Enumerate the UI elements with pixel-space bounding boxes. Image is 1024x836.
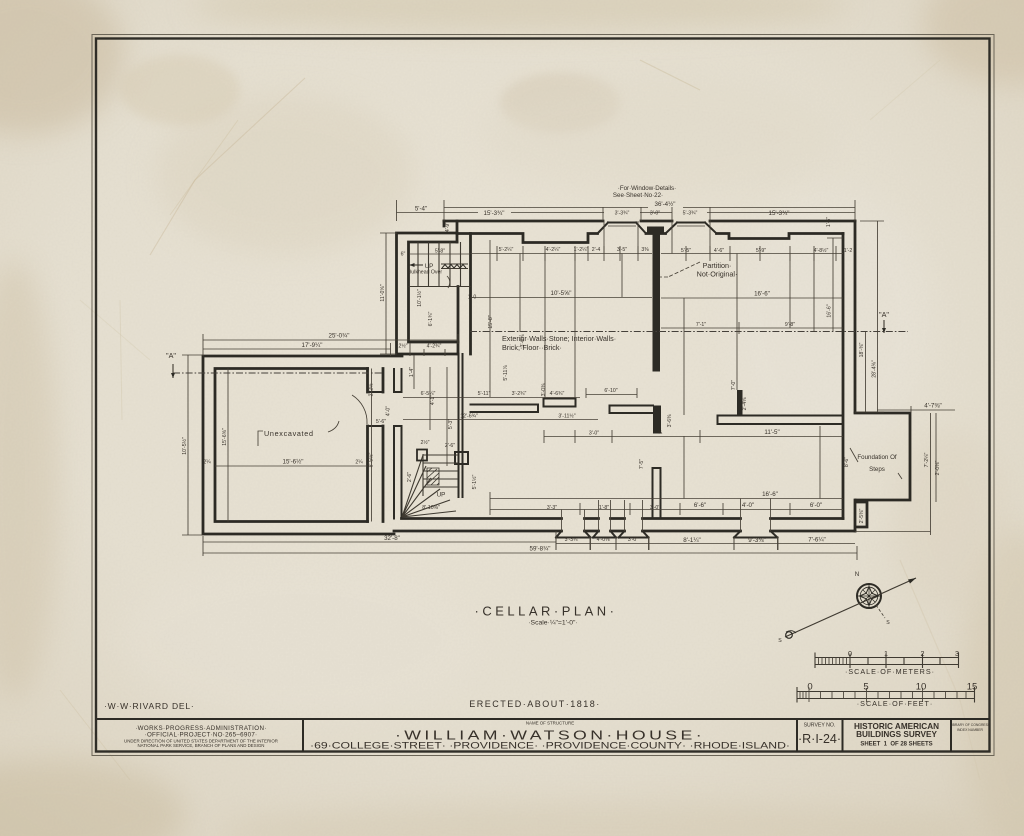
svg-text:·SCALE·OF·FEET·: ·SCALE·OF·FEET·	[857, 699, 934, 708]
svg-text:0: 0	[807, 682, 812, 693]
svg-text:"A": "A"	[879, 310, 889, 319]
svg-text:3'-0": 3'-0"	[650, 211, 660, 217]
svg-text:S: S	[886, 620, 890, 626]
svg-text:5'-11⅞: 5'-11⅞	[503, 365, 509, 381]
svg-text:5'-1½": 5'-1½"	[471, 475, 478, 490]
svg-text:2'-5⅜": 2'-5⅜"	[859, 509, 865, 524]
svg-text:11'-5": 11'-5"	[764, 429, 779, 436]
svg-text:1'-2: 1'-2	[844, 248, 853, 254]
svg-text:11'-0⅝": 11'-0⅝"	[380, 284, 386, 301]
svg-text:Bulkhead Over: Bulkhead Over	[408, 270, 443, 276]
svg-text:10: 10	[916, 682, 927, 693]
svg-text:2'-4: 2'-4	[592, 247, 601, 253]
svg-text:6'-1¾": 6'-1¾"	[428, 312, 434, 327]
svg-text:5'-4": 5'-4"	[415, 206, 427, 213]
svg-text:·For·Window·Details·: ·For·Window·Details·	[618, 185, 676, 192]
svg-text:·69·COLLEGE·STREET· ·PROVIDENC: ·69·COLLEGE·STREET· ·PROVIDENCE· ·PROVID…	[310, 741, 790, 752]
svg-text:10'-5⅝": 10'-5⅝"	[551, 290, 572, 297]
svg-text:15'-6⅝": 15'-6⅝"	[222, 428, 228, 446]
svg-text:1'-0: 1'-0	[468, 295, 477, 301]
svg-text:5'-5": 5'-5"	[681, 248, 691, 254]
svg-text:NAME OF STRUCTURE: NAME OF STRUCTURE	[526, 721, 574, 726]
svg-text:6'-0": 6'-0"	[810, 502, 822, 509]
svg-text:36'-4½": 36'-4½"	[655, 201, 676, 208]
svg-text:1'-4": 1'-4"	[409, 367, 415, 377]
svg-text:8'-1¼": 8'-1¼"	[683, 537, 700, 544]
svg-text:12'-6¾": 12'-6¾"	[460, 414, 478, 420]
svg-text:INDEX NUMBER: INDEX NUMBER	[957, 728, 984, 732]
svg-text:4'-0": 4'-0"	[386, 406, 392, 416]
svg-text:2'-0⅜": 2'-0⅜"	[935, 461, 941, 476]
svg-text:4'-2¼": 4'-2¼"	[546, 247, 561, 253]
svg-text:7'-6¼": 7'-6¼"	[808, 537, 825, 544]
svg-text:2'-4⅝: 2'-4⅝	[742, 397, 748, 410]
svg-text:Unexcavated: Unexcavated	[264, 429, 314, 438]
svg-text:UP: UP	[437, 492, 446, 499]
svg-text:SURVEY NO.: SURVEY NO.	[804, 723, 836, 729]
svg-text:8'-5½": 8'-5½"	[368, 453, 375, 468]
svg-text:15'-3¾": 15'-3¾"	[484, 210, 505, 217]
svg-text:3'-0⅜: 3'-0⅜	[541, 383, 547, 396]
svg-text:3⅜: 3⅜	[641, 247, 649, 253]
svg-text:·OFFICIAL·PROJECT·NO·265–6907·: ·OFFICIAL·PROJECT·NO·265–6907·	[145, 732, 258, 739]
svg-text:4'-7⅜": 4'-7⅜"	[924, 403, 941, 410]
svg-text:32'-8": 32'-8"	[384, 535, 400, 542]
svg-text:S: S	[778, 638, 782, 644]
svg-text:7'-2¼": 7'-2¼"	[924, 453, 930, 468]
svg-text:·R·I-24·: ·R·I-24·	[798, 732, 841, 746]
svg-text:16'-6": 16'-6"	[762, 491, 778, 498]
svg-text:4'-0⅜": 4'-0⅜"	[597, 537, 612, 543]
svg-text:3'-5": 3'-5"	[617, 247, 627, 253]
svg-text:9'-3⅜": 9'-3⅜"	[748, 537, 765, 544]
svg-text:4'-2¾": 4'-2¾"	[427, 344, 442, 350]
svg-text:8'-10⅜": 8'-10⅜"	[422, 505, 440, 511]
svg-text:15'-8": 15'-8"	[488, 315, 494, 328]
svg-text:1'-6": 1'-6"	[826, 217, 832, 227]
svg-text:7'-5": 7'-5"	[639, 459, 645, 469]
svg-text:NATIONAL PARK SERVICE, BRANCH: NATIONAL PARK SERVICE, BRANCH OF PLANS A…	[138, 743, 265, 748]
svg-text:Brick;·Floor··Brick·: Brick;·Floor··Brick·	[502, 343, 562, 352]
svg-text:¾: ¾	[658, 430, 663, 436]
svg-text:3'-0": 3'-0"	[589, 431, 599, 437]
svg-text:18'-⅜": 18'-⅜"	[859, 343, 865, 358]
svg-text:6'-6": 6'-6"	[694, 502, 706, 509]
svg-text:3'-3¾": 3'-3¾"	[565, 537, 580, 543]
svg-text:3'-2¾": 3'-2¾"	[512, 391, 527, 397]
svg-text:1'-2¼": 1'-2¼"	[574, 247, 589, 253]
svg-text:7'-0": 7'-0"	[731, 380, 737, 390]
svg-text:4'-8½": 4'-8½"	[814, 247, 829, 254]
svg-text:SHEET 1 OF 28 SHEETS: SHEET 1 OF 28 SHEETS	[860, 742, 932, 748]
svg-text:25'-0¾": 25'-0¾"	[329, 333, 350, 340]
svg-text:59'-8¾": 59'-8¾"	[530, 546, 551, 553]
svg-text:2¼: 2¼	[203, 460, 211, 466]
svg-text:2'-6": 2'-6"	[445, 443, 455, 449]
svg-text:Foundation Of: Foundation Of	[857, 454, 896, 461]
svg-text:10'-1½": 10'-1½"	[416, 289, 423, 307]
svg-text:4'-1": 4'-1"	[430, 395, 436, 405]
svg-text:5'-8": 5'-8"	[435, 249, 445, 255]
svg-text:Not·Original·: Not·Original·	[697, 270, 738, 279]
svg-text:2¼: 2¼	[355, 460, 363, 466]
svg-text:17'-9¼": 17'-9¼"	[302, 342, 323, 349]
svg-text:7'-1": 7'-1"	[696, 322, 706, 328]
svg-text:5'-3¾": 5'-3¾"	[683, 211, 698, 217]
svg-text:ERECTED·ABOUT·1818·: ERECTED·ABOUT·1818·	[469, 699, 601, 709]
svg-text:28'-4⅜": 28'-4⅜"	[872, 360, 878, 378]
svg-text:·Scale·¼"=1'-0"·: ·Scale·¼"=1'-0"·	[528, 620, 577, 627]
svg-text:4'-6": 4'-6"	[714, 248, 724, 254]
svg-text:6": 6"	[401, 252, 406, 258]
svg-text:5'-3": 5'-3"	[448, 419, 454, 429]
svg-text:N: N	[855, 571, 859, 578]
svg-text:2½": 2½"	[398, 343, 407, 350]
svg-text:5'-9": 5'-9"	[756, 248, 766, 254]
svg-text:1: 1	[884, 649, 888, 658]
svg-text:2½": 2½"	[420, 439, 429, 446]
svg-text:5'-6": 5'-6"	[376, 419, 386, 425]
svg-text:15'-6½": 15'-6½"	[283, 459, 304, 466]
svg-text:·SCALE·OF·METERS·: ·SCALE·OF·METERS·	[845, 667, 935, 676]
svg-text:2'-2½: 2'-2½	[368, 383, 375, 396]
svg-text:16'-6": 16'-6"	[754, 291, 770, 298]
svg-text:3'-0": 3'-0"	[628, 537, 638, 543]
svg-text:5: 5	[863, 682, 868, 693]
svg-text:5'-2¼": 5'-2¼"	[499, 247, 514, 253]
svg-text:See·Sheet·No·22·: See·Sheet·No·22·	[613, 192, 663, 199]
svg-text:·CELLAR·PLAN·: ·CELLAR·PLAN·	[475, 605, 618, 619]
svg-text:1'-8": 1'-8"	[599, 505, 609, 511]
svg-text:8'-6": 8'-6"	[844, 457, 850, 467]
svg-text:4'-6¾": 4'-6¾"	[550, 391, 565, 397]
svg-text:"A": "A"	[166, 351, 176, 360]
svg-text:3: 3	[955, 649, 959, 658]
svg-text:3'-0⅜: 3'-0⅜	[520, 334, 526, 347]
svg-text:0: 0	[848, 649, 852, 658]
svg-text:10'-5½": 10'-5½"	[181, 437, 188, 455]
svg-text:6'-10": 6'-10"	[604, 388, 617, 394]
svg-text:3'-3¾": 3'-3¾"	[615, 211, 630, 217]
svg-text:16'-6": 16'-6"	[827, 304, 833, 317]
svg-text:3'-3": 3'-3"	[547, 505, 557, 511]
svg-text:15'-3¾": 15'-3¾"	[769, 210, 790, 217]
svg-text:4'-9": 4'-9"	[445, 222, 451, 232]
svg-text:3'-0": 3'-0"	[650, 505, 660, 511]
svg-text:Steps: Steps	[869, 466, 885, 473]
svg-text:BUILDINGS SURVEY: BUILDINGS SURVEY	[856, 730, 937, 739]
svg-text:LIBRARY OF CONGRESS: LIBRARY OF CONGRESS	[950, 723, 991, 727]
svg-text:2'-6": 2'-6"	[407, 472, 413, 482]
svg-text:·W·W·RIVARD DEL·: ·W·W·RIVARD DEL·	[104, 701, 195, 711]
svg-text:3'-11½": 3'-11½"	[558, 413, 575, 420]
svg-text:4'-0": 4'-0"	[742, 502, 754, 509]
svg-text:2: 2	[921, 649, 925, 658]
svg-text:5'-11": 5'-11"	[478, 391, 491, 397]
svg-text:15: 15	[967, 682, 978, 693]
svg-text:3'-6⅜: 3'-6⅜	[667, 414, 673, 427]
